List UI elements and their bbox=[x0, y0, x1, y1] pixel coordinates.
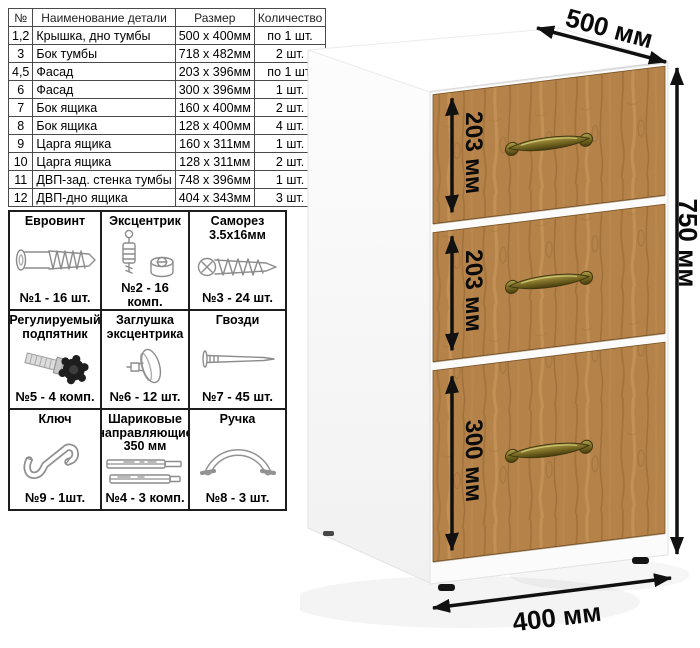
part-num: 10 bbox=[9, 153, 33, 171]
hardware-cell-eurovint: Евровинт №1 - 16 шт. bbox=[10, 212, 100, 309]
hex-key-icon bbox=[15, 434, 95, 484]
cabinet-render: 203 мм 203 мм 300 мм 500 мм 750 мм 400 м… bbox=[300, 0, 700, 648]
part-size: 160 x 400мм bbox=[175, 99, 254, 117]
part-name: Царга ящика bbox=[33, 153, 175, 171]
part-num: 6 bbox=[9, 81, 33, 99]
part-num: 12 bbox=[9, 189, 33, 207]
part-name: Крышка, дно тумбы bbox=[33, 27, 175, 45]
part-size: 718 x 482мм bbox=[175, 45, 254, 63]
part-num: 3 bbox=[9, 45, 33, 63]
table-row: 12ДВП-дно ящика404 x 343мм3 шт. bbox=[9, 189, 326, 207]
cabinet-foot bbox=[438, 584, 455, 591]
hardware-title: Регулируемый подпятник bbox=[10, 314, 100, 341]
hardware-qty: №2 - 16 комп. bbox=[104, 281, 186, 309]
hardware-cell-excentric: Эксцентрик №2 - 16 комп. bbox=[102, 212, 188, 309]
hardware-qty: №3 - 24 шт. bbox=[202, 291, 273, 305]
dim-label-drawer-2: 203 мм bbox=[460, 248, 487, 333]
parts-table: № Наименование детали Размер Количество … bbox=[8, 8, 326, 207]
cabinet-foot bbox=[632, 557, 649, 564]
part-name: Бок тумбы bbox=[33, 45, 175, 63]
table-row: 7Бок ящика160 x 400мм2 шт. bbox=[9, 99, 326, 117]
hardware-title: Евровинт bbox=[25, 215, 85, 229]
euro-screw-icon bbox=[13, 238, 97, 282]
table-row: 9Царга ящика160 x 311мм1 шт. bbox=[9, 135, 326, 153]
dim-label-drawer-1: 203 мм bbox=[460, 110, 487, 195]
col-header-size: Размер bbox=[175, 9, 254, 27]
hardware-title: Ключ bbox=[38, 413, 71, 427]
cabinet-front-face: 203 мм 203 мм 300 мм bbox=[430, 63, 668, 584]
hardware-qty: №8 - 3 шт. bbox=[206, 491, 270, 505]
table-row: 10Царга ящика128 x 311мм2 шт. bbox=[9, 153, 326, 171]
part-num: 9 bbox=[9, 135, 33, 153]
part-size: 300 x 396мм bbox=[175, 81, 254, 99]
col-header-name: Наименование детали bbox=[33, 9, 175, 27]
hardware-cell-cap: Заглушка эксцентрика №6 - 12 шт. bbox=[102, 311, 188, 408]
part-num: 11 bbox=[9, 171, 33, 189]
assembly-sheet: № Наименование детали Размер Количество … bbox=[0, 0, 700, 648]
hardware-cell-nails: Гвозди №7 - 45 шт. bbox=[190, 311, 285, 408]
part-size: 748 x 396мм bbox=[175, 171, 254, 189]
part-name: ДВП-зад. стенка тумбы bbox=[33, 171, 175, 189]
part-name: Бок ящика bbox=[33, 117, 175, 135]
hardware-cell-foot: Регулируемый подпятник №5 - 4 комп. bbox=[10, 311, 100, 408]
col-header-num: № bbox=[9, 9, 33, 27]
hardware-title: Эксцентрик bbox=[109, 215, 181, 229]
part-num: 4,5 bbox=[9, 63, 33, 81]
part-size: 128 x 400мм bbox=[175, 117, 254, 135]
part-name: ДВП-дно ящика bbox=[33, 189, 175, 207]
part-name: Царга ящика bbox=[33, 135, 175, 153]
part-size: 404 x 343мм bbox=[175, 189, 254, 207]
self-tapping-screw-icon bbox=[196, 247, 280, 287]
hardware-qty: №4 - 3 комп. bbox=[105, 491, 184, 505]
part-size: 203 x 396мм bbox=[175, 63, 254, 81]
drawer-handle-icon bbox=[198, 436, 278, 482]
hardware-cell-key: Ключ №9 - 1шт. bbox=[10, 410, 100, 509]
table-row: 1,2Крышка, дно тумбы500 x 400ммпо 1 шт. bbox=[9, 27, 326, 45]
hardware-qty: №9 - 1шт. bbox=[25, 491, 85, 505]
adjustable-foot-icon bbox=[15, 345, 95, 387]
cabinet-side-panel bbox=[308, 50, 430, 583]
table-row: 11ДВП-зад. стенка тумбы748 x 396мм1 шт. bbox=[9, 171, 326, 189]
hardware-title: Заглушка эксцентрика bbox=[104, 314, 186, 341]
hardware-title: Ручка bbox=[220, 413, 256, 427]
cabinet-foot bbox=[323, 531, 334, 536]
part-num: 7 bbox=[9, 99, 33, 117]
hardware-cell-slides: Шариковые направляющие 350 мм №4 - 3 ком… bbox=[102, 410, 188, 509]
ball-slides-icon bbox=[104, 456, 186, 488]
dim-label-height: 750 мм bbox=[673, 198, 700, 287]
part-size: 500 x 400мм bbox=[175, 27, 254, 45]
part-name: Фасад bbox=[33, 81, 175, 99]
hardware-qty: №6 - 12 шт. bbox=[109, 390, 180, 404]
table-row: 3Бок тумбы718 x 482мм2 шт. bbox=[9, 45, 326, 63]
table-row: 6Фасад300 x 396мм1 шт. bbox=[9, 81, 326, 99]
hardware-grid: Евровинт №1 - 16 шт. Эксцентрик bbox=[8, 210, 287, 511]
hardware-qty: №7 - 45 шт. bbox=[202, 390, 273, 404]
part-size: 160 x 311мм bbox=[175, 135, 254, 153]
hardware-title: Саморез 3.5x16мм bbox=[192, 215, 283, 242]
table-row: 8Бок ящика128 x 400мм4 шт. bbox=[9, 117, 326, 135]
hardware-cell-handle: Ручка №8 - 3 шт. bbox=[190, 410, 285, 509]
hardware-cell-samorez: Саморез 3.5x16мм №3 - 24 шт. bbox=[190, 212, 285, 309]
nail-icon bbox=[196, 337, 280, 381]
part-size: 128 x 311мм bbox=[175, 153, 254, 171]
part-num: 8 bbox=[9, 117, 33, 135]
part-name: Бок ящика bbox=[33, 99, 175, 117]
eccentric-cam-icon bbox=[105, 229, 185, 281]
hardware-title: Шариковые направляющие 350 мм bbox=[102, 413, 188, 454]
dim-label-drawer-3: 300 мм bbox=[460, 418, 487, 503]
hardware-qty: №5 - 4 комп. bbox=[15, 390, 94, 404]
hardware-title: Гвозди bbox=[216, 314, 260, 328]
hardware-qty: №1 - 16 шт. bbox=[19, 291, 90, 305]
table-row: 4,5Фасад203 x 396ммпо 1 шт. bbox=[9, 63, 326, 81]
part-name: Фасад bbox=[33, 63, 175, 81]
part-num: 1,2 bbox=[9, 27, 33, 45]
parts-table-header: № Наименование детали Размер Количество bbox=[9, 9, 326, 27]
cam-cover-icon bbox=[105, 344, 185, 388]
